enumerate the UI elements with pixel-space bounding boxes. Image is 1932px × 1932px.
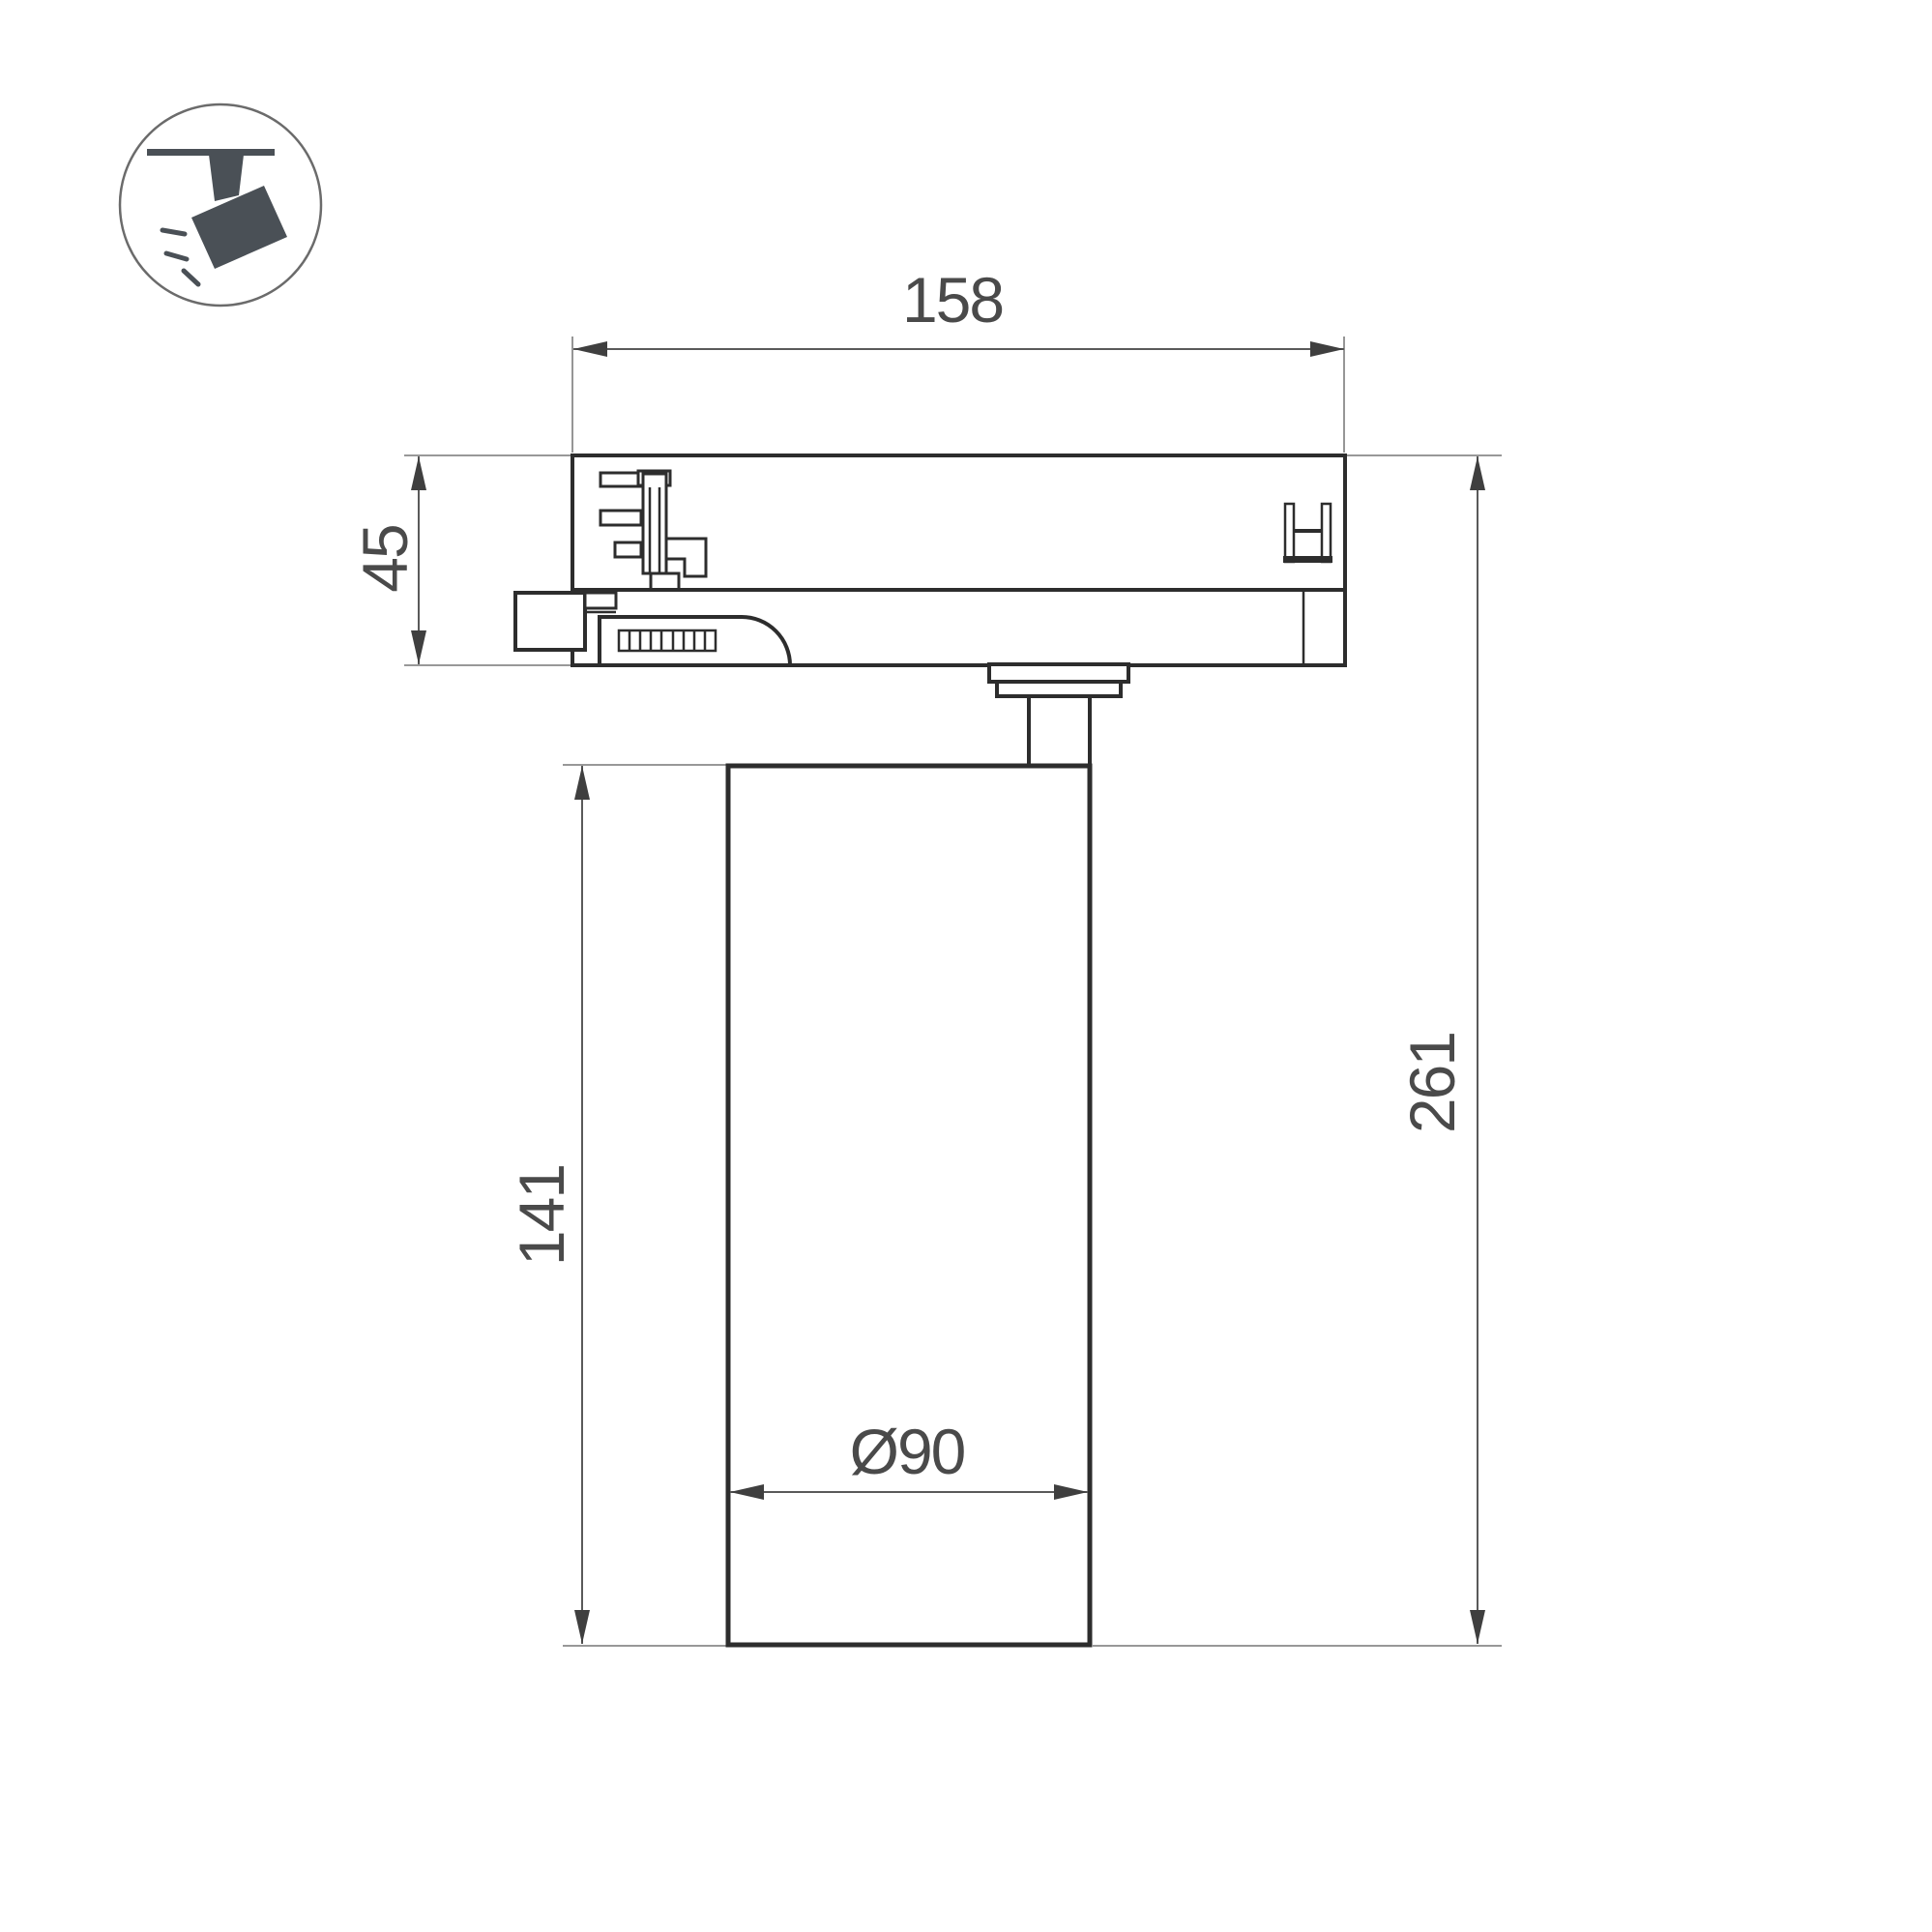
technical-drawing: 158 45 141 261 Ø90	[0, 0, 1932, 1932]
contact-base-block	[651, 573, 679, 590]
track-light-icon	[120, 104, 321, 306]
contact-pin-middle	[600, 511, 641, 525]
dim-label-261: 261	[1396, 1033, 1468, 1133]
arrow-up	[411, 456, 426, 490]
lamp-cylinder	[728, 766, 1090, 1645]
arrow-right	[1310, 341, 1344, 357]
arrow-up	[574, 766, 590, 800]
dimension-total-height: 261	[1396, 456, 1485, 1644]
latch-hinge-block	[585, 593, 616, 608]
track-adapter-body	[572, 455, 1345, 590]
arrow-down	[1470, 1610, 1485, 1644]
mounting-flange-upper	[989, 664, 1128, 682]
lamp-assembly	[728, 664, 1128, 1645]
contact-post	[643, 474, 666, 573]
icon-track-bar	[147, 149, 275, 156]
arrow-down	[411, 630, 426, 664]
release-latch	[515, 593, 585, 650]
contact-pin-top	[600, 473, 641, 486]
arrow-up	[1470, 456, 1485, 490]
drawing-page: 158 45 141 261 Ø90	[0, 0, 1932, 1932]
stem	[1029, 696, 1090, 764]
dimension-track-adapter-height: 45	[349, 456, 426, 664]
dimension-lamp-body-height: 141	[506, 766, 590, 1644]
icon-stem	[209, 155, 244, 201]
dimension-track-adapter-width: 158	[573, 264, 1344, 357]
dim-label-158: 158	[902, 264, 1003, 336]
mounting-flange-lower	[997, 682, 1121, 696]
dim-label-45: 45	[349, 525, 421, 592]
arrow-down	[574, 1610, 590, 1644]
dim-label-141: 141	[506, 1165, 577, 1266]
adapter-lower-housing	[515, 590, 1345, 665]
contact-pin-bottom	[615, 542, 641, 557]
dim-label-diameter-90: Ø90	[850, 1416, 965, 1487]
arrow-left	[573, 341, 607, 357]
